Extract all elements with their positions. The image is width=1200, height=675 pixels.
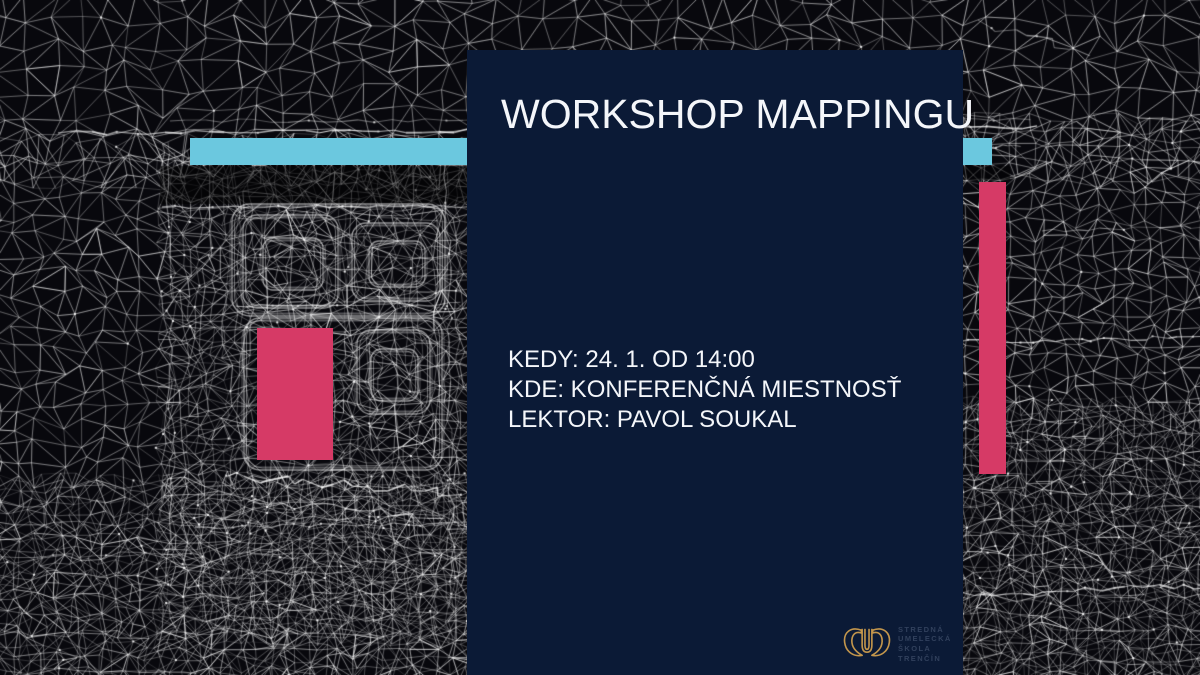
school-name: STREDNÁ UMELECKÁ ŠKOLA TRENČÍN — [898, 625, 952, 663]
pink-accent-rectangle — [257, 328, 333, 460]
event-when-line: KEDY: 24. 1. OD 14:00 — [508, 345, 901, 375]
event-where-line: KDE: KONFERENČNÁ MIESTNOSŤ — [508, 375, 901, 405]
event-details: KEDY: 24. 1. OD 14:00 KDE: KONFERENČNÁ M… — [508, 345, 901, 435]
school-name-line: STREDNÁ — [898, 625, 952, 635]
school-name-line: ŠKOLA — [898, 644, 952, 654]
event-lecturer-line: LEKTOR: PAVOL SOUKAL — [508, 405, 901, 435]
school-emblem-icon — [841, 622, 893, 666]
school-name-line: TRENČÍN — [898, 654, 952, 664]
school-logo: STREDNÁ UMELECKÁ ŠKOLA TRENČÍN — [841, 622, 952, 666]
event-panel: WORKSHOP MAPPINGU KEDY: 24. 1. OD 14:00 … — [467, 50, 963, 675]
event-title: WORKSHOP MAPPINGU — [501, 94, 974, 135]
school-name-line: UMELECKÁ — [898, 634, 952, 644]
pink-accent-bar — [979, 182, 1006, 474]
poster-stage: WORKSHOP MAPPINGU KEDY: 24. 1. OD 14:00 … — [0, 0, 1200, 675]
